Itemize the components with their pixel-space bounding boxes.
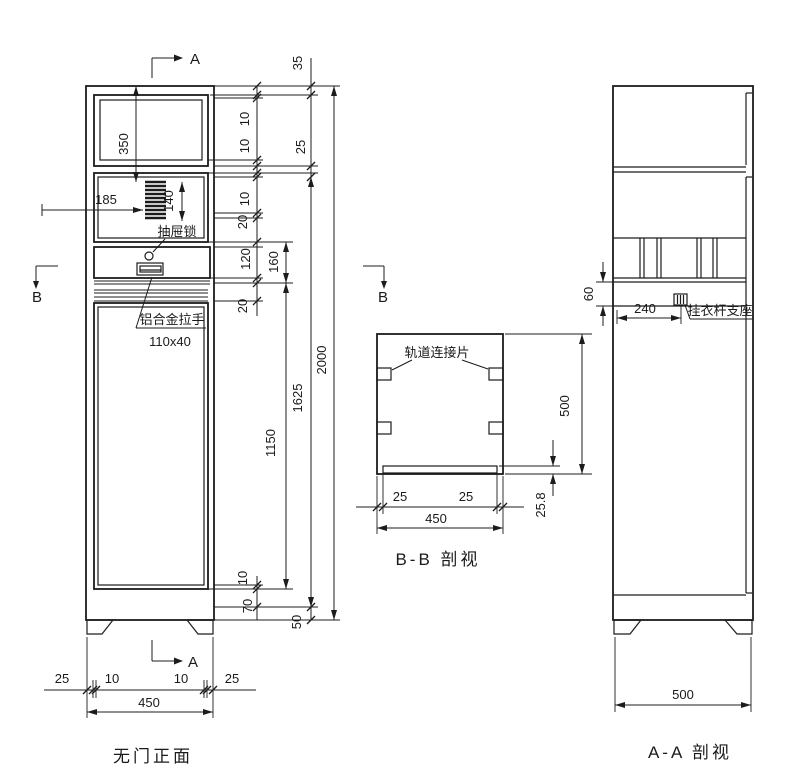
technical-drawing: A A B B 350 185 140 — [0, 0, 790, 773]
front-view-width-dimensions: 25 10 10 25 450 无门正面 — [44, 637, 256, 766]
dim-panel-height: 1150 — [263, 429, 278, 457]
dim-top-rail: 35 — [290, 56, 305, 70]
bb-base-plate — [383, 466, 497, 473]
label-handle-size: 110x40 — [149, 334, 191, 349]
foot-left — [87, 620, 113, 634]
dim-base-10-left: 10 — [105, 671, 119, 686]
section-marker-b-left: B — [32, 266, 58, 306]
dim-chain1-1: 10 — [237, 139, 252, 153]
dim-drawer-module: 160 — [266, 251, 281, 273]
aa-shell — [613, 86, 753, 620]
dim-rod-offset: 240 — [634, 301, 656, 316]
dim-base-height: 50 — [289, 615, 304, 629]
dim-cabinet-width: 450 — [138, 695, 160, 710]
rod-support-bracket — [674, 294, 687, 305]
label-drawer-lock: 抽屉锁 — [157, 224, 196, 239]
dim-chain1-4: 120 — [238, 248, 253, 270]
dim-chain1-2: 10 — [237, 192, 252, 206]
front-view-title: 无门正面 — [113, 747, 193, 766]
track-clip-top-right — [489, 368, 503, 380]
dim-bottom-10: 10 — [235, 571, 250, 585]
marker-letter-a: A — [190, 51, 200, 68]
dim-bb-base: 25.8 — [533, 492, 548, 517]
section-marker-a-bottom: A — [152, 640, 198, 671]
aa-foot-left — [614, 620, 641, 634]
dim-base-25-left: 25 — [55, 671, 69, 686]
bb-view-title: B-B 剖视 — [395, 550, 480, 569]
dim-aa-depth: 500 — [672, 687, 694, 702]
dim-chain1-5: 20 — [235, 299, 250, 313]
top-window-outer — [94, 95, 208, 166]
marker-letter-b: B — [378, 289, 388, 306]
dim-bottom-70: 70 — [240, 599, 255, 613]
drawer-lock-cylinder — [145, 252, 153, 260]
track-clip-top-left — [377, 368, 391, 380]
track-clip-mid-right — [489, 422, 503, 434]
dim-vent-height: 140 — [161, 190, 176, 212]
dim-chain1-0: 10 — [237, 112, 252, 126]
drawer-rail-band — [613, 238, 746, 282]
dim-base-25-right: 25 — [225, 671, 239, 686]
dim-rail-height: 60 — [581, 287, 596, 301]
engineering-drawing-sheet: A A B B 350 185 140 — [0, 0, 790, 773]
dim-bb-depth: 500 — [557, 395, 572, 417]
aa-foot-right — [725, 620, 752, 634]
track-clip-mid-left — [377, 422, 391, 434]
dim-total-height: 2000 — [314, 346, 329, 375]
dim-bb-width: 450 — [425, 511, 447, 526]
marker-letter-b: B — [32, 289, 42, 306]
section-marker-a-top: A — [152, 51, 200, 78]
dim-bb-inset-right: 25 — [459, 489, 473, 504]
aa-section-view: 60 240 挂衣杆支座 500 A-A 剖视 — [581, 86, 753, 762]
label-track-connector: 轨道连接片 — [404, 345, 469, 360]
dim-gap-25: 25 — [293, 140, 308, 154]
aa-view-title: A-A 剖视 — [648, 743, 732, 762]
front-view: A A B B 350 185 140 — [32, 51, 388, 671]
bb-section-view: 轨道连接片 25 25 450 500 25.8 B-B 剖视 — [356, 334, 592, 569]
dim-1625: 1625 — [290, 384, 305, 413]
dim-bb-inset-left: 25 — [393, 489, 407, 504]
dim-base-10-right: 10 — [174, 671, 188, 686]
marker-letter-a: A — [188, 654, 198, 671]
label-handle: 铝合金拉手 — [139, 312, 204, 327]
drawer-handle — [137, 263, 163, 275]
dim-vent-offset: 185 — [95, 192, 117, 207]
front-view-height-dimensions: 10 10 10 20 120 20 10 70 160 1150 35 25 … — [208, 56, 340, 629]
label-rod-support: 挂衣杆支座 — [687, 303, 752, 318]
section-marker-b-right: B — [363, 266, 388, 306]
dim-chain1-3: 20 — [235, 215, 250, 229]
foot-right — [187, 620, 213, 634]
dim-window-height: 350 — [116, 133, 131, 155]
